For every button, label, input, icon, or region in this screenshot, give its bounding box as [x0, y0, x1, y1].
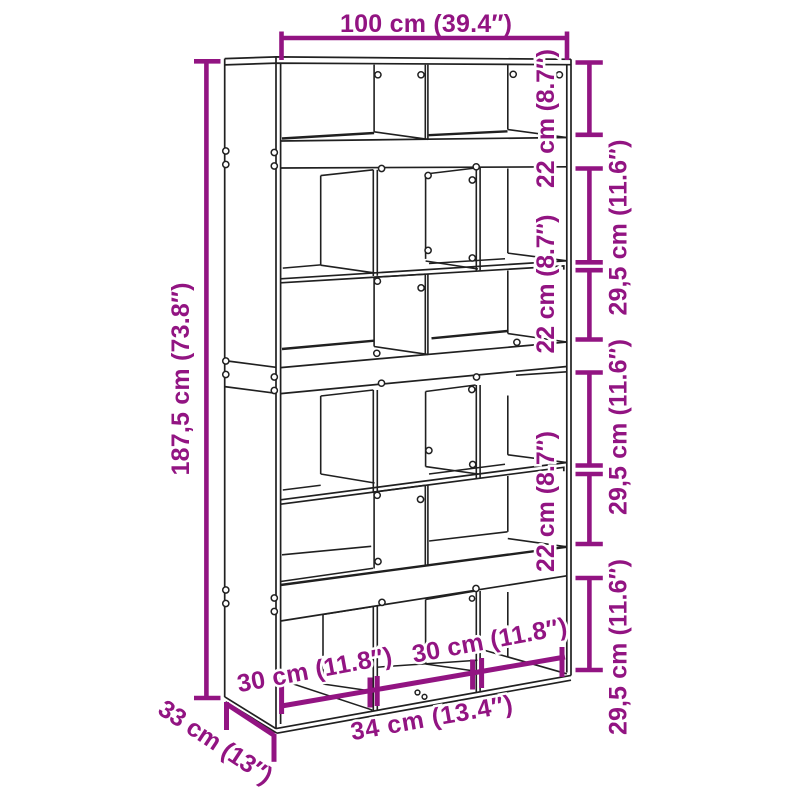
svg-text:22 cm (8.7″): 22 cm (8.7″) [532, 431, 560, 572]
svg-text:22 cm (8.7″): 22 cm (8.7″) [532, 215, 560, 354]
svg-text:29,5 cm (11.6″): 29,5 cm (11.6″) [605, 140, 633, 316]
svg-text:187,5 cm (73.8″): 187,5 cm (73.8″) [167, 283, 195, 476]
svg-text:100 cm (39.4″): 100 cm (39.4″) [340, 10, 512, 38]
svg-text:29,5 cm (11.6″): 29,5 cm (11.6″) [605, 339, 633, 515]
svg-text:29,5 cm (11.6″): 29,5 cm (11.6″) [605, 559, 633, 735]
svg-text:22 cm (8.7″): 22 cm (8.7″) [532, 49, 560, 188]
